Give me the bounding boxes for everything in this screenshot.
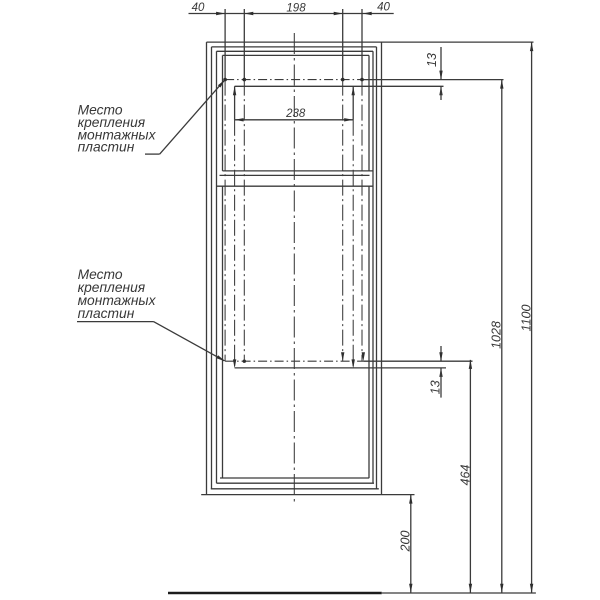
svg-text:464: 464 — [458, 465, 472, 486]
svg-text:238: 238 — [285, 108, 306, 120]
svg-text:40: 40 — [192, 2, 205, 14]
svg-text:40: 40 — [377, 2, 390, 14]
svg-text:200: 200 — [398, 531, 412, 553]
svg-text:пластин: пластин — [78, 140, 135, 155]
svg-text:пластин: пластин — [78, 306, 135, 321]
svg-text:198: 198 — [286, 3, 306, 15]
svg-text:13: 13 — [429, 380, 443, 394]
svg-text:1100: 1100 — [519, 305, 533, 332]
svg-text:13: 13 — [425, 53, 439, 67]
svg-text:1028: 1028 — [489, 321, 503, 349]
